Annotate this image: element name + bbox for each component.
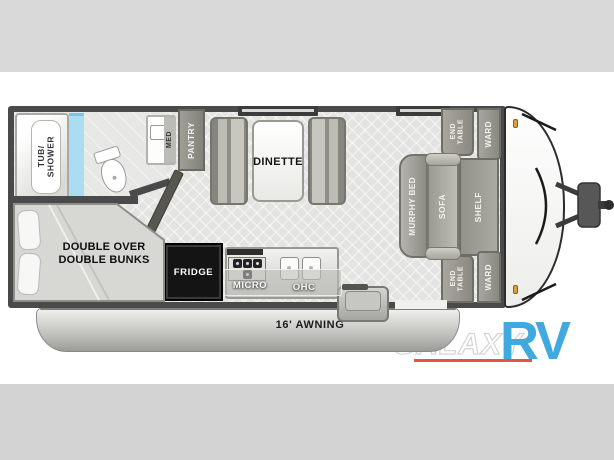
- window-icon: [238, 106, 318, 116]
- fridge-label: FRIDGE: [174, 267, 214, 278]
- med-label-strip: MED: [164, 117, 176, 163]
- clearance-light-icon: [513, 119, 518, 128]
- dinette-label: DINETTE: [220, 156, 336, 168]
- dealer-logo-underline: [414, 359, 532, 362]
- bottom-gray-band: [0, 384, 614, 460]
- murphy-bed-label: MURPHY BED: [409, 177, 418, 236]
- med-label: MED: [166, 131, 174, 148]
- entry-step-bracket: [342, 284, 368, 290]
- tub-shower-label-pill: TUB/ SHOWER: [31, 120, 61, 194]
- awning-rail: [40, 308, 456, 310]
- floorplan-canvas: GALAXY RV 16' AWNING TUB/ SHOWER MED: [0, 0, 614, 460]
- clearance-light-icon: [513, 285, 518, 294]
- pantry-label: PANTRY: [187, 122, 196, 159]
- sofa-label: SOFA: [438, 194, 447, 219]
- dealer-logo-suffix: RV: [500, 310, 568, 372]
- shelf-shape: SHELF: [459, 158, 499, 256]
- sofa-armrest: [425, 153, 461, 166]
- tub-shower-label: TUB/ SHOWER: [37, 136, 56, 177]
- shelf-label: SHELF: [474, 192, 483, 222]
- wardrobe-top: WARD: [477, 108, 501, 160]
- sofa-armrest: [425, 247, 461, 260]
- wardrobe-bottom: WARD: [477, 251, 501, 303]
- micro-label: MICRO: [226, 280, 274, 291]
- end-table-label: END TABLE: [450, 119, 465, 144]
- end-table-bottom: END TABLE: [441, 255, 474, 303]
- wardrobe-label: WARD: [485, 121, 494, 147]
- awning-label: 16' AWNING: [200, 319, 420, 331]
- bunks-label: DOUBLE OVER DOUBLE BUNKS: [28, 241, 180, 266]
- top-gray-band: [0, 0, 614, 72]
- range-hood-icon: [227, 249, 263, 255]
- pantry-cabinet: PANTRY: [178, 109, 205, 171]
- murphy-bed-panel: MURPHY BED: [399, 154, 428, 258]
- shower-curtain-icon: [69, 113, 84, 201]
- end-table-label: END TABLE: [450, 266, 465, 291]
- entry-door-opening: [395, 300, 447, 309]
- ohc-label: OHC: [284, 282, 324, 293]
- front-cap-graphics-icon: [504, 106, 566, 308]
- sofa-shape: SOFA: [427, 158, 459, 256]
- wardrobe-label: WARD: [485, 264, 494, 290]
- end-table-top: END TABLE: [441, 108, 474, 156]
- entry-step-tread: [345, 291, 381, 311]
